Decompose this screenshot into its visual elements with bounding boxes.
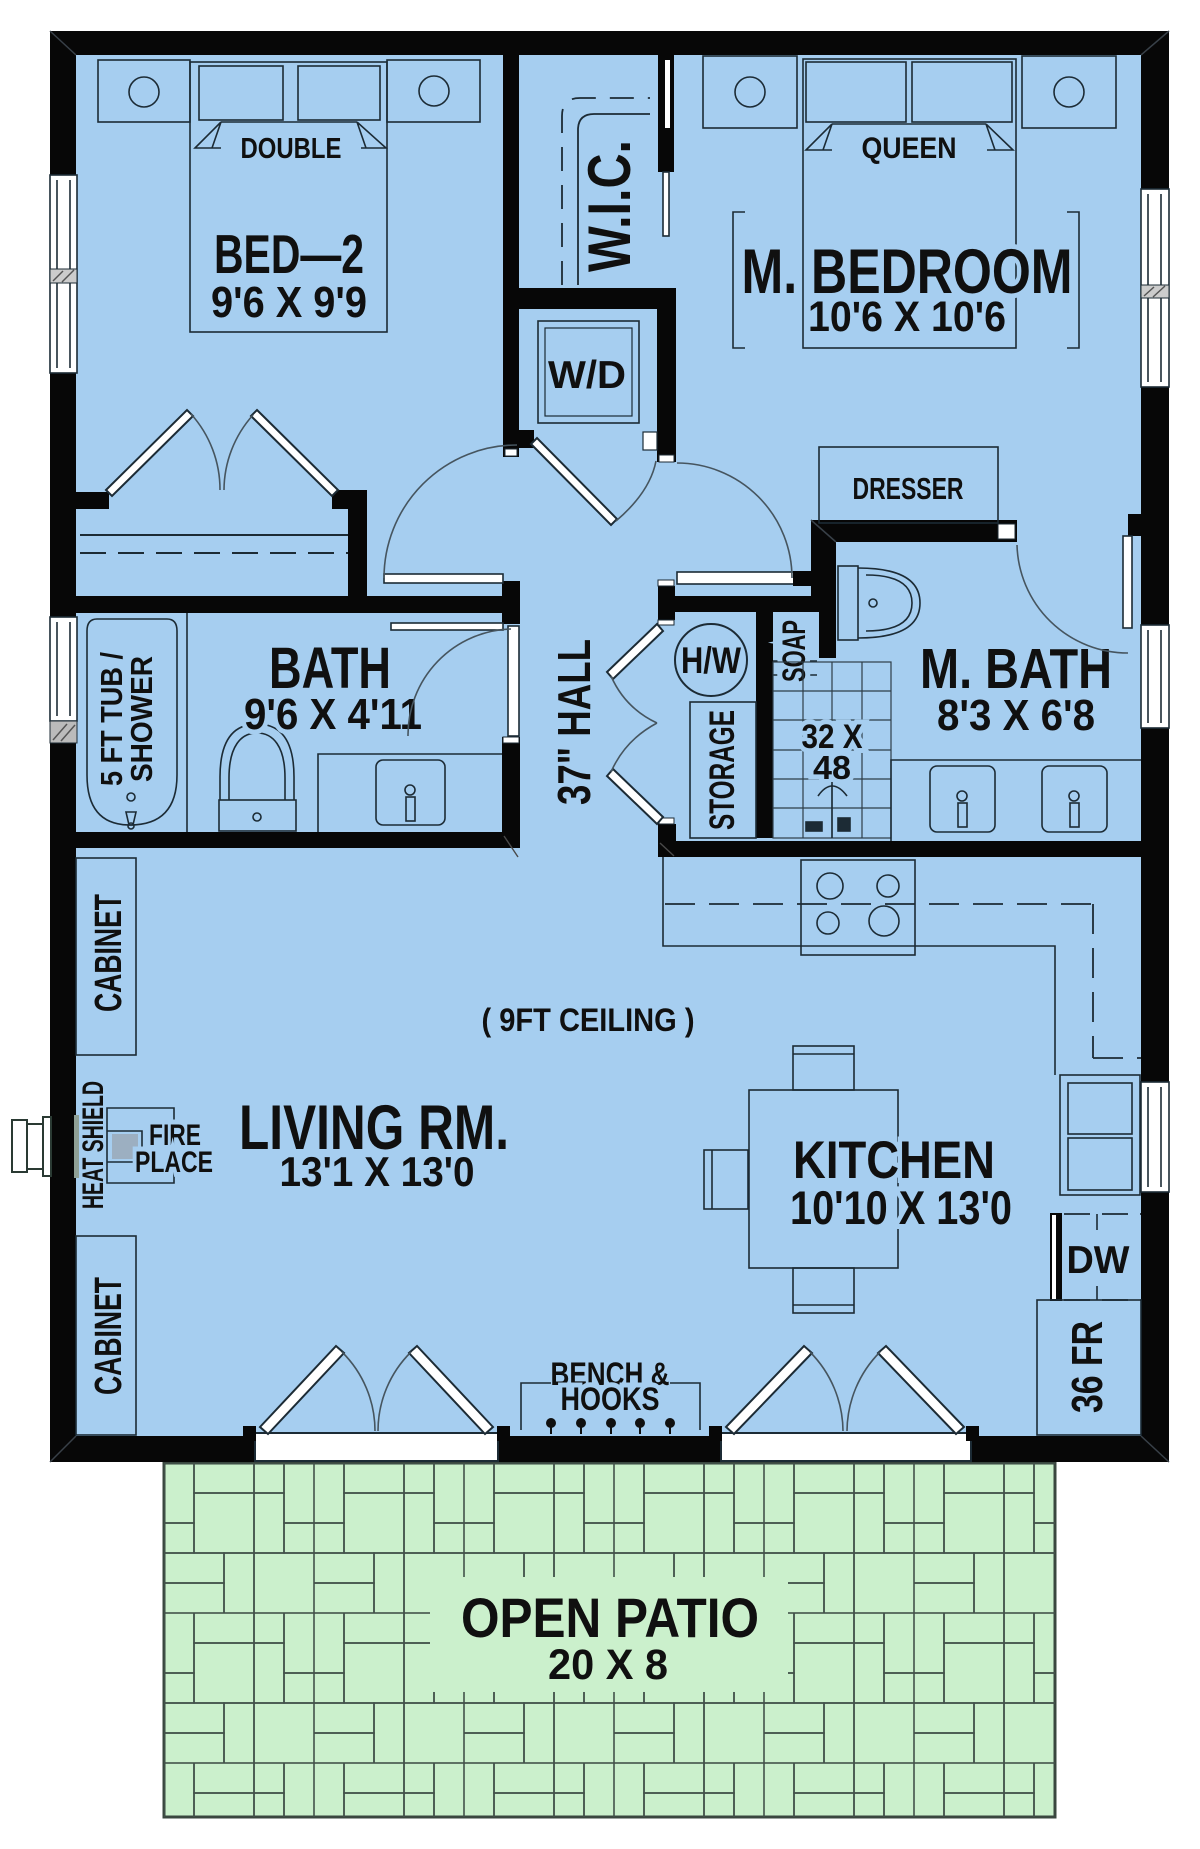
svg-text:( 9FT CEILING ): ( 9FT CEILING )	[482, 1002, 695, 1038]
svg-text:9'6 X 4'11: 9'6 X 4'11	[244, 690, 422, 739]
svg-text:QUEEN: QUEEN	[862, 132, 957, 165]
svg-text:10'10 X 13'0: 10'10 X 13'0	[790, 1181, 1012, 1234]
svg-text:10'6 X 10'6: 10'6 X 10'6	[808, 293, 1006, 341]
svg-text:36 FR: 36 FR	[1063, 1321, 1112, 1413]
svg-text:W/D: W/D	[548, 354, 626, 397]
svg-text:13'1 X 13'0: 13'1 X 13'0	[280, 1148, 475, 1195]
svg-text:37" HALL: 37" HALL	[548, 639, 600, 805]
svg-text:DW: DW	[1067, 1239, 1130, 1282]
svg-text:CABINET: CABINET	[88, 894, 130, 1012]
svg-text:HOOKS: HOOKS	[561, 1381, 660, 1417]
svg-text:DRESSER: DRESSER	[853, 471, 964, 506]
svg-text:H/W: H/W	[681, 640, 741, 681]
svg-text:48: 48	[813, 749, 851, 786]
svg-text:HEAT SHIELD: HEAT SHIELD	[77, 1081, 110, 1209]
svg-text:BED—2: BED—2	[214, 223, 364, 285]
svg-text:DOUBLE: DOUBLE	[241, 133, 342, 165]
svg-text:PLACE: PLACE	[135, 1146, 213, 1179]
svg-text:SOAP: SOAP	[776, 620, 812, 682]
svg-text:CABINET: CABINET	[88, 1277, 130, 1395]
svg-text:8'3 X 6'8: 8'3 X 6'8	[937, 691, 1095, 740]
svg-text:W.I.C.: W.I.C.	[576, 140, 643, 272]
svg-text:OPEN PATIO: OPEN PATIO	[461, 1586, 759, 1649]
svg-text:STORAGE: STORAGE	[703, 710, 742, 830]
svg-text:SHOWER: SHOWER	[124, 656, 159, 782]
svg-text:20 X 8: 20 X 8	[548, 1641, 668, 1689]
svg-text:9'6 X 9'9: 9'6 X 9'9	[211, 278, 367, 327]
